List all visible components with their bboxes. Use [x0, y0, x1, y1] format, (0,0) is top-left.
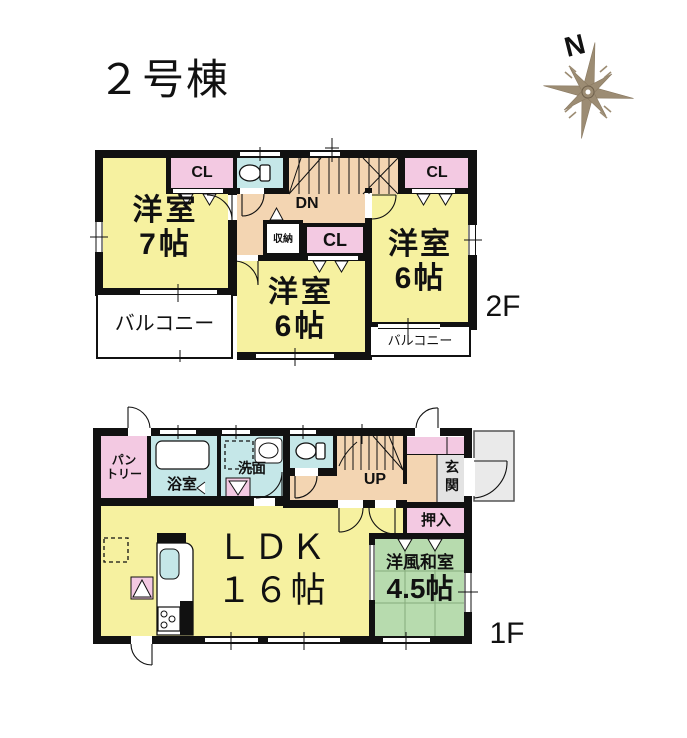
bathtub-icon [156, 441, 209, 469]
toilet-icon-2f [240, 165, 271, 181]
toilet-icon-1f [296, 443, 325, 459]
page-title: ２号棟 [98, 46, 230, 107]
room-7jo-label: 洋室7帖 [103, 183, 228, 273]
floor-label-2f: 2F [480, 289, 526, 325]
stairs-down-label: DN [286, 194, 328, 214]
washroom-label: 洗面 [224, 459, 280, 477]
balcony-left-label: バルコニー [97, 308, 232, 340]
japanese-room-label: 洋風和室 4.5帖 [375, 543, 465, 615]
compass-north-label: N [561, 28, 588, 63]
entrance-label: 玄関 [441, 456, 463, 496]
floorplan-page: ２号棟 N [0, 0, 687, 738]
floor-label-1f: 1F [484, 616, 530, 652]
kitchen-cabinet [131, 577, 153, 599]
stairs-up-label: UP [352, 470, 398, 490]
compass-icon: N [535, 15, 645, 140]
balcony-right-label: バルコニー [370, 328, 470, 354]
pantry-label: パントリー [101, 444, 147, 492]
ldk-label: ＬＤＫ１６帖 [168, 526, 376, 612]
room-6jo-right-label: 洋室6帖 [372, 220, 468, 304]
storage-label: 収納 [264, 223, 302, 256]
porch [472, 431, 514, 501]
entrance-hall-floor [407, 455, 437, 502]
room-6jo-center-label: 洋室6帖 [237, 268, 365, 352]
oshiire-label: 押入 [408, 509, 464, 533]
washbasin-icon [226, 478, 250, 498]
entrance-closet [407, 437, 467, 455]
closet-middle-label: CL [304, 226, 366, 254]
closet-right-label: CL [406, 159, 468, 187]
bathroom-label: 浴室 [153, 475, 211, 495]
